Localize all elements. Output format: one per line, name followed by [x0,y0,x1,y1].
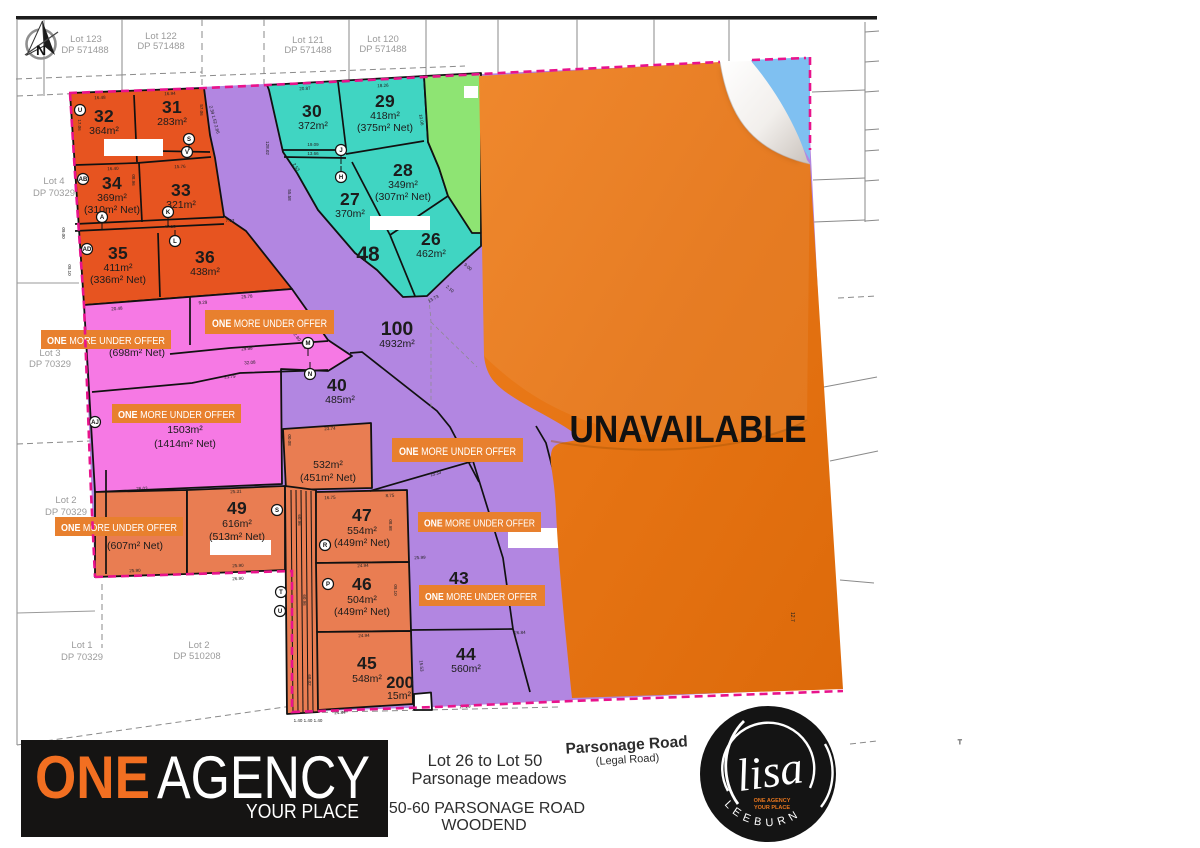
svg-text:(307m² Net): (307m² Net) [375,191,431,203]
svg-text:(375m² Net): (375m² Net) [357,122,413,134]
svg-text:25.31: 25.31 [230,489,242,494]
svg-text:57.06: 57.06 [199,104,204,116]
svg-text:16.48: 16.48 [94,95,106,100]
svg-text:28: 28 [393,160,413,180]
svg-text:R: R [323,543,328,549]
svg-text:25.99: 25.99 [414,555,426,560]
svg-text:45: 45 [357,653,377,673]
svg-text:P: P [326,582,330,588]
svg-text:DP 70329: DP 70329 [45,507,87,518]
svg-text:ONE MORE UNDER OFFER: ONE MORE UNDER OFFER [61,522,177,534]
svg-text:ONE MORE UNDER OFFER: ONE MORE UNDER OFFER [425,591,537,603]
svg-text:25.90: 25.90 [232,563,244,568]
svg-text:32.08: 32.08 [244,360,256,366]
svg-text:(1414m² Net): (1414m² Net) [154,438,216,450]
svg-text:128.02: 128.02 [265,141,270,155]
svg-text:AJ: AJ [91,420,99,426]
svg-text:UNAVAILABLE: UNAVAILABLE [570,409,807,451]
svg-text:44: 44 [456,644,476,664]
svg-text:09.10: 09.10 [393,584,398,596]
svg-text:Lot 26 to Lot 50: Lot 26 to Lot 50 [428,752,543,770]
svg-text:4932m²: 4932m² [379,338,415,350]
svg-text:Parsonage meadows: Parsonage meadows [411,770,566,788]
svg-text:36: 36 [195,247,215,267]
svg-text:33: 33 [171,180,191,200]
svg-text:47: 47 [352,505,372,525]
svg-text:32: 32 [94,106,114,126]
svg-text:532m²: 532m² [313,459,343,471]
svg-text:09.00: 09.00 [61,227,66,239]
svg-text:ONE MORE UNDER OFFER: ONE MORE UNDER OFFER [47,335,165,347]
svg-text:ONE MORE UNDER OFFER: ONE MORE UNDER OFFER [212,318,327,330]
svg-text:30: 30 [302,101,322,121]
svg-text:60.96: 60.96 [302,594,307,606]
svg-text:S: S [187,137,191,143]
svg-text:24.94: 24.94 [358,633,370,638]
svg-text:16.40: 16.40 [107,166,119,171]
svg-text:26.84: 26.84 [514,630,526,635]
svg-text:T: T [958,740,962,746]
svg-text:485m²: 485m² [325,394,355,406]
svg-text:283m²: 283m² [157,116,187,128]
svg-text:21.79: 21.79 [224,374,236,380]
svg-text:24.94: 24.94 [357,563,369,568]
svg-text:YOUR PLACE: YOUR PLACE [754,805,790,811]
svg-text:DP 510208: DP 510208 [173,651,220,662]
svg-text:1503m²: 1503m² [167,424,203,436]
svg-text:554m²: 554m² [347,525,377,537]
svg-text:29: 29 [375,91,395,111]
svg-text:DP 571488: DP 571488 [61,45,108,56]
svg-text:(310m² Net): (310m² Net) [84,204,140,216]
svg-text:U: U [278,609,282,615]
svg-text:1.40 1.40 1.40: 1.40 1.40 1.40 [294,718,323,723]
svg-text:411m²: 411m² [104,262,133,274]
svg-text:8.75: 8.75 [385,493,394,498]
svg-text:9.29: 9.29 [198,300,208,306]
svg-text:N: N [36,42,46,58]
svg-text:M: M [306,341,311,347]
svg-text:49: 49 [227,498,247,518]
svg-text:DP 70329: DP 70329 [33,188,75,199]
svg-text:438m²: 438m² [190,266,220,278]
svg-text:504m²: 504m² [347,594,377,606]
svg-text:H: H [339,175,343,181]
svg-text:29.98: 29.98 [241,346,253,352]
svg-text:V: V [185,150,189,156]
svg-text:lisa: lisa [733,741,806,801]
svg-text:25.78: 25.78 [241,294,253,300]
svg-text:370m²: 370m² [335,208,365,220]
svg-text:15.53: 15.53 [419,660,425,672]
svg-text:369m²: 369m² [97,192,127,204]
svg-text:548m²: 548m² [352,673,382,685]
svg-text:08.96: 08.96 [131,174,136,186]
svg-text:616m²: 616m² [222,518,252,530]
svg-text:DP 571488: DP 571488 [284,45,331,56]
svg-text:08.98: 08.98 [388,519,393,531]
svg-text:(336m² Net): (336m² Net) [90,274,146,286]
svg-text:(449m² Net): (449m² Net) [334,606,390,618]
svg-text:AD: AD [83,247,92,253]
svg-text:20.48: 20.48 [111,306,123,312]
svg-text:DP 70329: DP 70329 [29,359,71,370]
svg-text:ONE MORE UNDER OFFER: ONE MORE UNDER OFFER [424,518,535,530]
svg-text:60.96: 60.96 [297,514,302,526]
svg-text:16.75: 16.75 [324,495,336,500]
svg-text:WOODEND: WOODEND [441,817,526,834]
svg-text:31: 31 [162,97,182,117]
svg-text:462m²: 462m² [416,248,446,260]
svg-text:ONE MORE UNDER OFFER: ONE MORE UNDER OFFER [118,409,235,421]
svg-text:Lot 3: Lot 3 [39,348,60,359]
svg-text:(607m² Net): (607m² Net) [107,540,163,552]
svg-text:Lot 2: Lot 2 [188,640,209,651]
svg-text:26.90: 26.90 [232,576,244,581]
svg-text:48: 48 [356,243,380,266]
svg-text:35: 35 [108,243,128,263]
svg-text:DP 70329: DP 70329 [61,652,103,663]
svg-text:55.58: 55.58 [287,189,292,201]
svg-text:(449m² Net): (449m² Net) [334,537,390,549]
svg-text:N: N [308,372,312,378]
svg-text:19.09: 19.09 [307,142,319,147]
svg-text:ONE MORE UNDER OFFER: ONE MORE UNDER OFFER [399,446,516,458]
svg-text:J: J [339,148,342,154]
svg-text:18.26: 18.26 [377,83,389,89]
svg-text:47.15: 47.15 [164,224,176,229]
svg-text:U: U [78,108,82,114]
svg-text:09.10: 09.10 [67,264,72,276]
svg-text:100: 100 [381,318,414,340]
svg-text:418m²: 418m² [370,110,400,122]
svg-text:26: 26 [421,229,441,249]
svg-text:L: L [173,239,177,245]
svg-text:DP 571488: DP 571488 [359,44,406,55]
svg-text:S: S [275,508,279,514]
svg-text:23.74: 23.74 [324,426,336,432]
svg-text:Lot 123: Lot 123 [70,34,102,45]
svg-text:7.53: 7.53 [226,218,235,223]
svg-text:Lot 4: Lot 4 [43,176,64,187]
svg-text:Lot 1: Lot 1 [71,640,92,651]
svg-text:372m²: 372m² [298,120,328,132]
svg-text:13.66: 13.66 [307,151,319,156]
svg-text:DP 571488: DP 571488 [137,41,184,52]
svg-text:15.76: 15.76 [174,164,186,169]
svg-text:ONE AGENCY: ONE AGENCY [754,798,791,804]
svg-text:15m²: 15m² [387,690,411,702]
svg-text:YOUR PLACE: YOUR PLACE [246,801,359,823]
svg-text:26.03: 26.03 [136,486,148,492]
svg-text:12.7: 12.7 [789,612,795,622]
svg-text:Lot 2: Lot 2 [55,495,76,506]
svg-text:25.90: 25.90 [129,568,141,573]
svg-text:K: K [166,210,171,216]
svg-text:(451m² Net): (451m² Net) [300,472,356,484]
svg-text:AB: AB [79,177,88,183]
svg-text:364m²: 364m² [89,125,119,137]
svg-text:00.08: 00.08 [287,434,292,446]
svg-text:(513m² Net): (513m² Net) [209,531,265,543]
svg-text:68.02: 68.02 [307,674,312,686]
svg-text:ONE: ONE [35,744,150,811]
svg-text:20.87: 20.87 [299,86,311,92]
svg-text:34: 34 [102,173,122,193]
svg-text:349m²: 349m² [388,179,418,191]
svg-text:16.94: 16.94 [164,91,176,96]
svg-text:46: 46 [352,574,372,594]
svg-text:50-60 PARSONAGE ROAD: 50-60 PARSONAGE ROAD [389,800,585,817]
svg-text:T: T [279,590,283,596]
svg-text:17.06: 17.06 [77,119,82,131]
svg-text:560m²: 560m² [451,663,481,675]
svg-text:40: 40 [327,375,347,395]
svg-text:27: 27 [340,189,360,209]
svg-text:A: A [100,215,105,221]
